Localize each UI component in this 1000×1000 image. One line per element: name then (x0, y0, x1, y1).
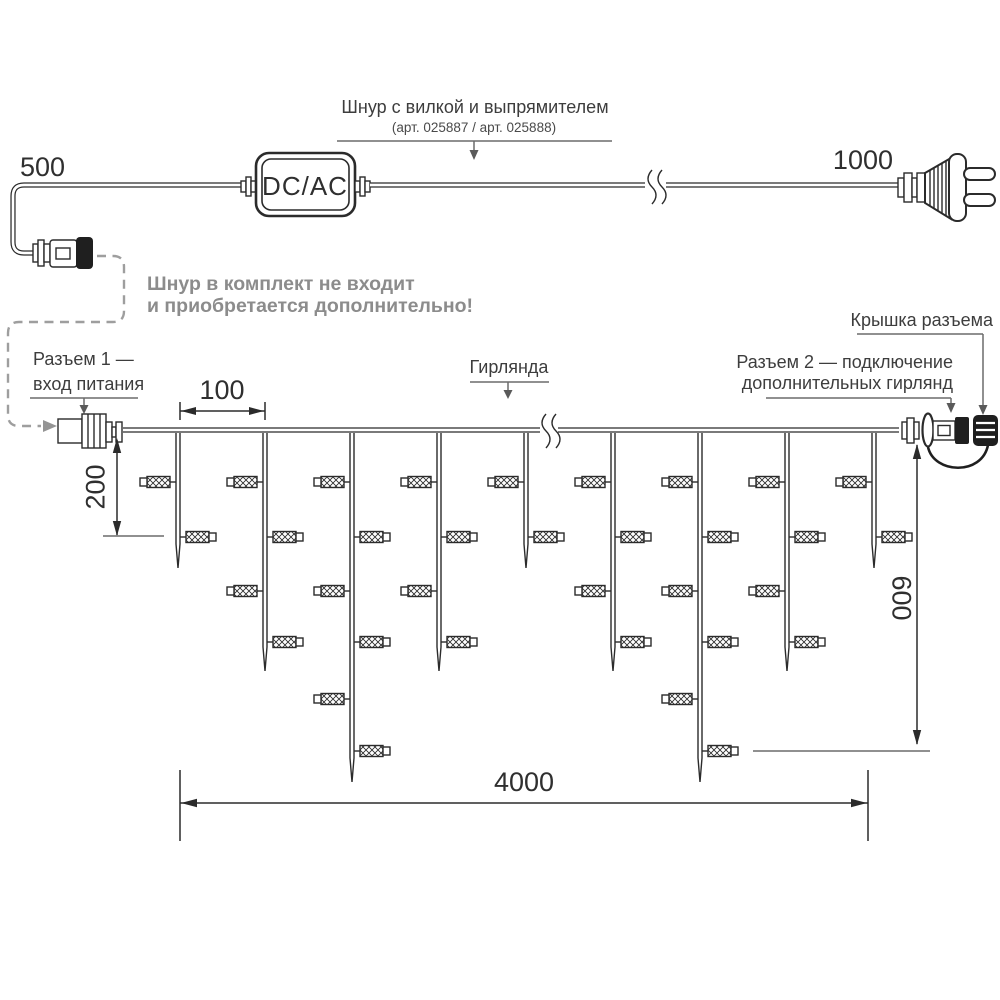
led-bulb-tip (314, 587, 321, 595)
led-bulb-body (360, 532, 383, 543)
led-bulb-tip (227, 587, 234, 595)
cord-title: Шнур с вилкой и выпрямителем (341, 97, 608, 117)
cap-label-text: Крышка разъема (851, 310, 994, 330)
led-bulb-body (621, 532, 644, 543)
led-bulb-body (447, 637, 470, 648)
garland-label-text: Гирлянда (470, 357, 550, 377)
connector1-label: Разъем 1 — вход питания (30, 349, 144, 414)
led-bulb-body (708, 746, 731, 757)
led-bulb-body (669, 586, 692, 597)
led-bulb-tip (209, 533, 216, 541)
dim-4000: 4000 (180, 767, 868, 841)
led-bulb-body (273, 637, 296, 648)
note-line2: и приобретается дополнительно! (147, 295, 473, 317)
icicle-drop (437, 433, 441, 671)
led-bulb-tip (383, 638, 390, 646)
connector2-label-line2: дополнительных гирлянд (742, 373, 954, 393)
led-bulb-tip (557, 533, 564, 541)
dim-600: 600 (753, 444, 930, 751)
connector2-label: Разъем 2 — подключение дополнительных ги… (736, 352, 955, 413)
led-bulb-tip (383, 747, 390, 755)
dim-1000-label: 1000 (833, 145, 893, 175)
led-bulb-body (273, 532, 296, 543)
led-bulb-tip (227, 478, 234, 486)
garland-label: Гирлянда (470, 357, 550, 399)
dim-500-label: 500 (20, 152, 65, 182)
icicle-drop (176, 433, 180, 568)
garland-drops (140, 433, 912, 782)
led-bulb-tip (662, 478, 669, 486)
connector1-label-line1: Разъем 1 — (33, 349, 134, 369)
converter-label: DC/AC (262, 171, 348, 201)
cord-end-connector (33, 237, 93, 269)
led-bulb-tip (731, 747, 738, 755)
led-bulb-body (447, 532, 470, 543)
led-bulb-tip (731, 638, 738, 646)
icicle-drop (350, 433, 354, 782)
cord-end-black-cap (76, 237, 93, 269)
led-bulb-tip (818, 533, 825, 541)
led-bulb-tip (296, 533, 303, 541)
icicle-drop (263, 433, 267, 671)
led-bulb-body (843, 477, 866, 488)
cap-leash-ring (923, 414, 934, 447)
led-bulb-body (234, 586, 257, 597)
led-bulb-body (882, 532, 905, 543)
led-bulb-body (669, 694, 692, 705)
led-bulb-tip (383, 533, 390, 541)
led-bulb-tip (470, 533, 477, 541)
led-bulb-body (234, 477, 257, 488)
led-bulb-body (669, 477, 692, 488)
euro-plug-icon (898, 154, 995, 221)
led-bulb-body (321, 586, 344, 597)
icicle-drop (785, 433, 789, 671)
led-bulb-body (708, 637, 731, 648)
dim-100: 100 (180, 375, 265, 420)
garland-assembly (58, 414, 998, 783)
led-bulb-tip (401, 478, 408, 486)
led-bulb-body (360, 637, 383, 648)
led-bulb-body (756, 477, 779, 488)
icicle-drop (872, 433, 876, 568)
led-bulb-body (186, 532, 209, 543)
led-bulb-body (408, 477, 431, 488)
dcac-converter-box: DC/AC (241, 153, 370, 216)
led-bulb-body (621, 637, 644, 648)
cord-break-icon (648, 170, 666, 204)
cord-subtitle: (арт. 025887 / арт. 025888) (392, 120, 556, 135)
led-bulb-tip (314, 695, 321, 703)
led-bulb-tip (488, 478, 495, 486)
led-bulb-tip (644, 638, 651, 646)
led-bulb-tip (662, 695, 669, 703)
led-bulb-tip (470, 638, 477, 646)
led-bulb-body (582, 477, 605, 488)
led-bulb-tip (575, 478, 582, 486)
led-bulb-body (582, 586, 605, 597)
cap-leash (928, 445, 988, 468)
connector1-label-line2: вход питания (33, 374, 144, 394)
connector-cap (973, 415, 998, 446)
led-bulb-tip (662, 587, 669, 595)
icicle-drop (524, 433, 528, 568)
led-bulb-body (534, 532, 557, 543)
led-bulb-tip (731, 533, 738, 541)
led-bulb-body (495, 477, 518, 488)
led-bulb-tip (818, 638, 825, 646)
garland-break-icon (542, 414, 560, 448)
led-bulb-body (321, 694, 344, 705)
led-bulb-tip (836, 478, 843, 486)
led-bulb-body (147, 477, 170, 488)
led-bulb-tip (575, 587, 582, 595)
led-bulb-tip (749, 478, 756, 486)
dim-4000-label: 4000 (494, 767, 554, 797)
led-bulb-body (756, 586, 779, 597)
cord-title-leader (337, 141, 612, 160)
icicle-drop (611, 433, 615, 671)
led-bulb-body (360, 746, 383, 757)
led-bulb-tip (140, 478, 147, 486)
garland-schematic: DC/AC 500 100 (0, 0, 1000, 1000)
connector-1 (58, 414, 122, 448)
led-bulb-body (321, 477, 344, 488)
note-line1: Шнур в комплект не входит (147, 273, 415, 295)
led-bulb-tip (401, 587, 408, 595)
dim-600-label: 600 (887, 575, 917, 620)
icicle-drop (698, 433, 702, 782)
power-cord-assembly: DC/AC 500 100 (13, 97, 995, 317)
led-bulb-body (708, 532, 731, 543)
led-bulb-body (795, 637, 818, 648)
led-bulb-tip (905, 533, 912, 541)
plug-prong-bottom (964, 194, 995, 206)
plug-prong-top (964, 168, 995, 180)
dashed-arrowhead (43, 420, 57, 432)
led-bulb-tip (296, 638, 303, 646)
diagram-canvas: DC/AC 500 100 (0, 0, 1000, 1000)
led-bulb-body (795, 532, 818, 543)
dim-200-label: 200 (80, 464, 110, 509)
led-bulb-tip (749, 587, 756, 595)
dashed-connection-path (8, 256, 124, 432)
led-bulb-tip (314, 478, 321, 486)
connector2-label-line1: Разъем 2 — подключение (736, 352, 953, 372)
led-bulb-body (408, 586, 431, 597)
connector-2-body (955, 417, 969, 444)
led-bulb-tip (644, 533, 651, 541)
dim-100-label: 100 (199, 375, 244, 405)
